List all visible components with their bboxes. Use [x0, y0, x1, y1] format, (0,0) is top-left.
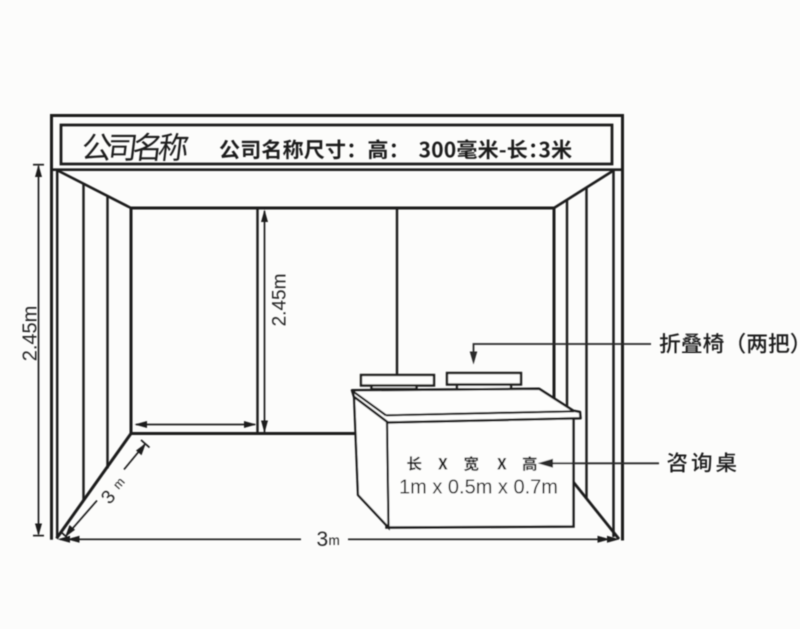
svg-text:1m x 0.5m x 0.7m: 1m x 0.5m x 0.7m: [399, 477, 558, 499]
svg-text:3: 3: [97, 487, 120, 509]
svg-text:m: m: [110, 475, 127, 492]
svg-text:m: m: [329, 533, 340, 548]
svg-text:2.45m: 2.45m: [20, 306, 42, 362]
svg-text:2.45m: 2.45m: [270, 274, 291, 327]
svg-text:3: 3: [317, 528, 329, 551]
